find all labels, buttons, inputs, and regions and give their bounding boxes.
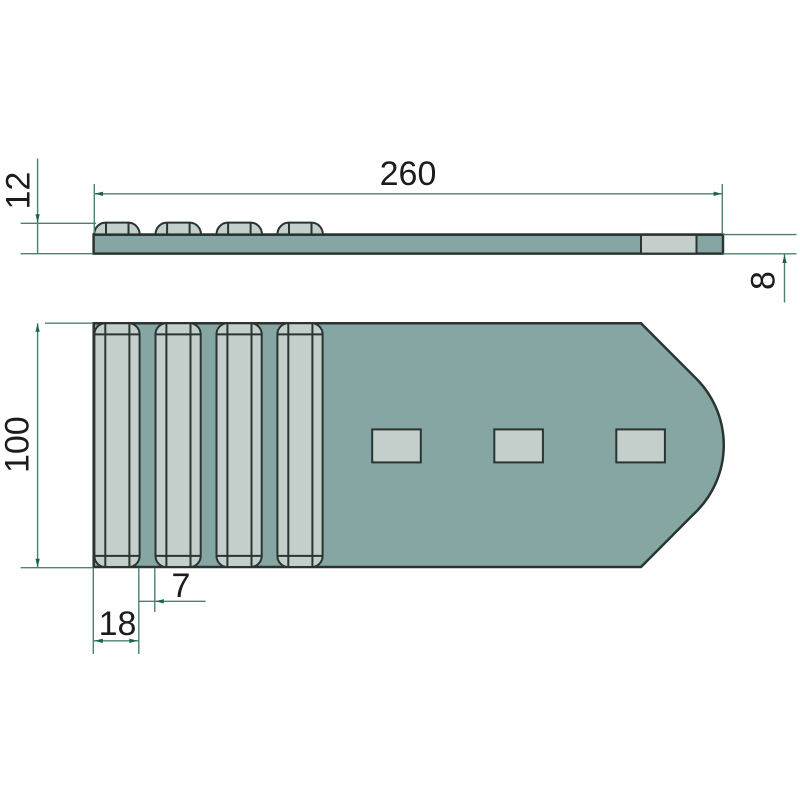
svg-text:12: 12 (0, 172, 37, 210)
svg-text:260: 260 (380, 155, 437, 193)
svg-text:8: 8 (745, 271, 783, 290)
svg-text:18: 18 (99, 605, 137, 643)
svg-text:7: 7 (172, 567, 191, 605)
svg-text:100: 100 (0, 416, 37, 473)
